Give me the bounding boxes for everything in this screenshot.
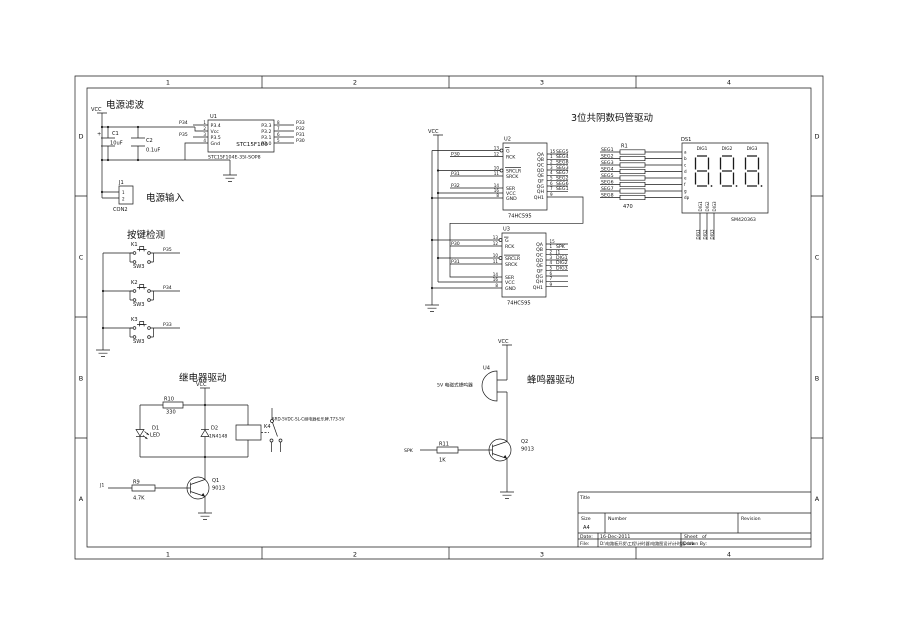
power-input-label: 电源输入 (146, 192, 185, 204)
vcc-symbol (433, 135, 443, 143)
gnd-symbol (198, 508, 212, 519)
pin-number: 8 (277, 120, 280, 125)
net-label: SEG2 (556, 176, 569, 182)
connector-part: CON2 (113, 207, 128, 213)
switch-ref: K1 (131, 242, 138, 248)
pin-number: 2 (550, 160, 553, 165)
pin-number: 4 (550, 170, 553, 175)
buzzer-section: 蜂鸣器驱动 VCC U4 5V 电磁式蜂鸣器 Q2 9013 R11 1K SP… (404, 339, 575, 498)
diode-ref: D2 (211, 426, 218, 432)
vcc-label: VCC (428, 129, 439, 135)
capacitor-value: 0.1uF (146, 148, 160, 154)
junction-dot (137, 159, 139, 161)
resistor-body (620, 163, 645, 167)
junction-dot (102, 290, 104, 292)
net-label: P30 (296, 138, 305, 144)
led-symbol (136, 430, 144, 437)
digit-label: DIG3 (747, 146, 758, 152)
buzzer-symbol (482, 371, 497, 401)
pin-number: 10 (493, 253, 499, 258)
pin-name: P3.0 (261, 141, 271, 147)
net-label: SPK (404, 448, 414, 454)
tb-drawn-label: Drawn By: (683, 541, 707, 547)
junction-dot (431, 287, 433, 289)
pin-name: QD (536, 258, 544, 264)
grid-col-label: 3 (540, 551, 544, 559)
net-label: P35 (179, 132, 188, 138)
resistor-body (437, 447, 458, 453)
gnd-symbol (425, 300, 439, 311)
transistor-ref: Q1 (212, 478, 219, 484)
chip-ref: U2 (504, 137, 511, 143)
power-filter-section: 电源滤波 VCC + C1 10uF C2 0.1uF U1 STC15F100… (91, 99, 305, 213)
net-label: DIG2 (556, 260, 568, 266)
digit-label: DIG2 (722, 146, 733, 152)
pin-name: QH1 (533, 285, 543, 291)
tb-file-label: File: (580, 541, 590, 547)
display-pin: DIG2 (705, 201, 710, 212)
pin-name: P3.2 (261, 129, 271, 135)
inversion-bubble (500, 149, 503, 152)
switch-part: SW3 (133, 339, 145, 345)
pin-name: GND (506, 196, 517, 202)
pin-name: G (505, 238, 509, 244)
pin-number: 15 (550, 149, 556, 154)
net-label: SEG2 (601, 153, 614, 159)
pin-number: 15 (550, 239, 556, 244)
capacitor-value: 10uF (110, 141, 123, 147)
gnd-symbol (223, 170, 237, 181)
resistor-ref: R10 (164, 397, 174, 403)
tb-date-label: Date: (580, 534, 593, 540)
pin-number: 3 (203, 132, 206, 137)
net-label: SEG7 (601, 186, 614, 192)
capacitor-ref: C1 (112, 131, 119, 137)
net-label: P35 (163, 247, 172, 253)
diode-value: LED (150, 433, 160, 439)
resistor-ref: R11 (439, 442, 449, 448)
resistor-value: 470 (623, 204, 633, 210)
pin-number: 5 (550, 176, 553, 181)
net-label: P30 (451, 241, 460, 247)
pin-number: 1 (550, 154, 553, 159)
net-label: DIG1 (696, 229, 701, 240)
display-part: SM420363 (731, 217, 756, 223)
relay-note: SRD-5VDC-SL-C继电器松乐牌,T73-5V (272, 416, 345, 422)
tb-date-value: 16-Dec-2011 (600, 534, 630, 540)
net-label: SEG4 (601, 166, 614, 172)
pin-number: 11 (494, 171, 500, 176)
display-pin: DIG1 (698, 201, 703, 212)
inversion-bubble (499, 257, 502, 260)
inversion-bubble (499, 239, 502, 242)
junction-dot (107, 159, 109, 161)
transistor-value: 9013 (212, 486, 225, 492)
pin-number: 5 (277, 138, 280, 143)
section-title: 按键检测 (127, 229, 165, 241)
display-ref: DS1 (681, 137, 691, 143)
resistor-body (132, 485, 155, 491)
inversion-bubble (500, 169, 503, 172)
pin-name: P3.4 (211, 123, 221, 129)
net-label: DIG3 (556, 266, 568, 272)
pin-number: 1 (550, 244, 553, 249)
pin-name: SRCK (506, 174, 519, 180)
pin-name: QH (537, 189, 545, 195)
display-pin: g (684, 188, 687, 193)
pin-name: Gnd (211, 141, 221, 147)
pin-number: 5 (550, 266, 553, 271)
relay-blade (273, 423, 278, 437)
pin-name: QH (536, 279, 544, 285)
pin-name: GND (505, 286, 516, 292)
net-label: P32 (451, 183, 460, 189)
net-label: DIG2 (703, 229, 708, 240)
net-label: SEG4 (556, 154, 569, 160)
pin-number: 3 (550, 255, 553, 260)
pin-name: QB (536, 247, 543, 253)
switch-part: SW3 (133, 302, 145, 308)
junction-dot (101, 126, 103, 128)
grid-col-label: 4 (727, 79, 731, 87)
vcc-symbol (97, 113, 107, 121)
tb-title-label: Title (579, 495, 590, 501)
net-label: P33 (296, 120, 305, 126)
net-label: P32 (296, 126, 305, 132)
chip-part: 74HC595 (507, 301, 531, 307)
pin-number: 16 (493, 277, 499, 282)
junction-dot (137, 126, 139, 128)
resistor-body (620, 195, 645, 199)
display-pin: dp (684, 195, 690, 200)
digit-label: DIG1 (697, 146, 708, 152)
pin-name: P3.1 (261, 135, 271, 141)
gnd-symbol (96, 345, 110, 356)
capacitor-ref: C2 (146, 138, 153, 144)
junction-dot (431, 239, 433, 241)
net-label: SEG8 (601, 192, 614, 198)
resistor-value: 4.7K (133, 496, 145, 502)
pin-number: 4 (203, 138, 206, 143)
vcc-label: VCC (498, 339, 509, 345)
net-label: SEG3 (601, 160, 614, 166)
pin-name: P3.5 (211, 135, 221, 141)
grid-row-label: B (79, 375, 83, 383)
display-pin: d (684, 169, 687, 174)
tb-revision-label: Revision (741, 516, 761, 522)
pin-name: SRCLR (505, 256, 521, 262)
switch-ref: K3 (131, 317, 138, 323)
pin-name: Vcc (211, 129, 220, 135)
net-label: P34 (163, 285, 172, 291)
section-title: 3位共阴数码管驱动 (571, 112, 653, 124)
pin-number: 7 (277, 126, 280, 131)
net-label: P31 (296, 132, 305, 138)
net-label: P34 (179, 120, 188, 126)
pin-number: 3 (550, 165, 553, 170)
net-label: P31 (451, 171, 460, 177)
junction-dot (437, 192, 439, 194)
transistor-ref: Q2 (521, 439, 528, 445)
grid-col-label: 4 (727, 551, 731, 559)
pin-number: 11 (493, 259, 499, 264)
resistor-body (620, 176, 645, 180)
pin-name: RCK (506, 155, 516, 161)
grid-col-label: 1 (166, 551, 170, 559)
grid-col-label: 2 (353, 551, 357, 559)
pin-name: QE (537, 173, 544, 179)
net-label: SPK (556, 244, 566, 250)
chip-part: 74HC595 (508, 214, 532, 220)
net-label: SEG3 (556, 165, 569, 171)
relay-contact (270, 439, 273, 442)
grid-col-label: 1 (166, 79, 170, 87)
net-label: P30 (451, 151, 460, 157)
grid-row-label: D (814, 133, 819, 141)
resistor-body (620, 156, 645, 160)
junction-dot (102, 327, 104, 329)
diode-value: 1N4148 (209, 434, 227, 440)
pin-number: 13 (493, 235, 499, 240)
grid-row-label: C (815, 254, 820, 262)
pin-name: QC (536, 253, 544, 259)
net-label: SEG7 (556, 170, 569, 176)
relay-section: 继电器驱动 VCC R10 330 D1 LED D2 1N4148 K4 SR… (99, 372, 345, 519)
vcc-symbol (502, 345, 512, 353)
pin-number: 9 (550, 282, 553, 287)
pin-number: 6 (550, 181, 553, 186)
pin-name: G (506, 149, 510, 155)
chip-ref: U3 (503, 227, 510, 233)
pin-name: QF (537, 269, 544, 275)
resistor-value: 1K (439, 458, 446, 464)
net-label: SEG6 (601, 179, 614, 185)
gnd-symbol (500, 487, 514, 498)
resistor-body (620, 150, 645, 154)
grid-row-label: D (78, 133, 83, 141)
net-label: SEG5 (556, 149, 569, 155)
grid-row-label: A (815, 495, 820, 503)
pin-name: RCK (505, 244, 515, 250)
display-pin: b (684, 156, 687, 161)
diode-symbol (201, 430, 209, 437)
resistor-body (163, 402, 183, 408)
net-label: SEG8 (556, 160, 569, 166)
pin-name: P3.3 (261, 123, 271, 129)
resistor-value: 330 (166, 410, 176, 416)
pin-number: 12 (494, 151, 500, 156)
pushbutton (130, 285, 154, 302)
pin-number: 9 (550, 192, 553, 197)
mcu-ref: U1 (210, 114, 217, 120)
pin-number: 2 (122, 197, 125, 202)
tb-number-label: Number (608, 516, 627, 522)
pin-name: QF (538, 179, 545, 185)
seg-driver-section: 3位共阴数码管驱动 VCC U2 74HC595 13 12 10 11 14 … (425, 112, 768, 311)
pin-number: 8 (495, 283, 498, 288)
tb-sheet-label: Sheet (684, 534, 698, 540)
npn-transistor (187, 477, 209, 499)
mcu-part: STC15F104E-35I-SOP8 (208, 155, 261, 161)
resistor-ref: R1 (621, 144, 628, 150)
net-label: P33 (163, 322, 172, 328)
pin-number: 1 (203, 120, 206, 125)
pin-number: 6 (550, 271, 553, 276)
grid-row-label: A (79, 495, 84, 503)
schematic-canvas: 1 2 3 4 1 2 3 4 D C B A D C B A 电源滤波 VCC… (0, 0, 900, 636)
tb-size-value: A4 (583, 525, 590, 531)
pin-name: QD (537, 168, 545, 174)
buzzer-ref: U4 (483, 366, 490, 372)
section-title: 电源滤波 (106, 99, 145, 111)
net-label: SEG1 (601, 147, 614, 153)
net-label: SEG5 (601, 173, 614, 179)
pin-number: 2 (203, 126, 206, 131)
pin-number: 2 (550, 250, 553, 255)
display-pin: DIG3 (712, 201, 717, 212)
grid-col-label: 2 (353, 79, 357, 87)
vcc-label: VCC (196, 382, 207, 388)
pin-name: QA (537, 152, 545, 158)
net-label: J1 (99, 483, 104, 489)
buzzer-note: 5V 电磁式蜂鸣器 (437, 382, 473, 389)
pin-name: QG (537, 184, 545, 190)
display-pin: c (684, 162, 686, 167)
pin-name: QA (536, 242, 544, 248)
net-label: SEG1 (556, 186, 569, 192)
net-label: J1 (555, 250, 560, 256)
grid-row-label: B (815, 375, 819, 383)
vcc-symbol (200, 388, 210, 396)
junction-dot (101, 159, 103, 161)
net-label: DIG3 (710, 229, 715, 240)
switch-part: SW3 (133, 264, 145, 270)
pushbutton (130, 322, 154, 339)
pin-name: SRCLR (506, 169, 522, 175)
pin-number: 13 (494, 145, 500, 150)
resistor-body (620, 182, 645, 186)
pin-name: QE (536, 263, 543, 269)
vcc-label: VCC (91, 107, 102, 113)
grid-col-label: 3 (540, 79, 544, 87)
pin-number: 1 (122, 190, 125, 195)
pin-name: QB (537, 157, 544, 163)
pin-number: 10 (494, 165, 500, 170)
resistor-body (620, 189, 645, 193)
net-label: DIG1 (556, 255, 568, 261)
pin-number: 6 (277, 132, 280, 137)
pin-name: QG (536, 274, 544, 280)
npn-transistor (489, 439, 511, 461)
junction-dot (431, 197, 433, 199)
switch-ref: K2 (131, 280, 138, 286)
junction-dot (204, 456, 206, 458)
pin-name: QC (537, 163, 545, 169)
tb-of-label: of (702, 534, 707, 540)
pin-number: 7 (550, 276, 553, 281)
pin-number: 12 (493, 241, 499, 246)
net-label: SEG6 (556, 181, 569, 187)
junction-dot (437, 169, 439, 171)
connector-ref: J1 (118, 180, 124, 186)
pin-name: SRCK (505, 262, 518, 268)
resistor-body (620, 169, 645, 173)
junction-dot (437, 257, 439, 259)
relay-contact (279, 439, 282, 442)
relay-coil (236, 425, 261, 440)
pushbutton (130, 247, 154, 264)
resistor-ref: R9 (133, 480, 140, 486)
junction-dot (101, 191, 103, 193)
grid-row-label: C (79, 254, 84, 262)
title-block: Title Size A4 Number Revision Date: 16-D… (578, 492, 811, 547)
relay-ref: K4 (264, 424, 271, 430)
pin-number: 4 (550, 260, 553, 265)
junction-dot (204, 404, 206, 406)
tb-size-label: Size (581, 516, 591, 522)
section-title: 蜂鸣器驱动 (527, 374, 575, 386)
pin-number: 8 (496, 193, 499, 198)
diode-ref: D1 (152, 426, 159, 432)
transistor-value: 9013 (521, 447, 534, 453)
pin-name: VCC (505, 280, 515, 286)
net-label: P31 (451, 259, 460, 265)
capacitor-polarity: + (97, 132, 101, 138)
pin-name: QH1 (534, 195, 544, 201)
key-detect-section: 按键检测 K1 SW3 P35 K2 SW3 P34 K3 SW3 P33 (96, 229, 180, 356)
tb-file-value: D:\电路板开发\工程\计时器\电路图设计\计时器.ddb (600, 540, 695, 546)
junction-dot (107, 126, 109, 128)
pin-number: 7 (550, 186, 553, 191)
